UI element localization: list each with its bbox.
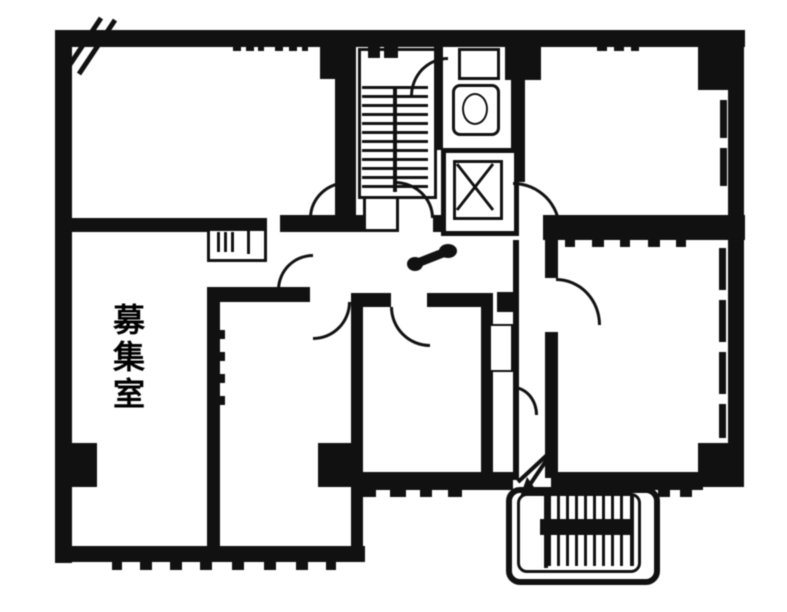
window-tick xyxy=(676,240,686,247)
window-tick xyxy=(420,490,432,497)
window-tick xyxy=(719,300,726,342)
door-swing-arc-icon xyxy=(309,181,348,218)
duct-outline xyxy=(489,324,513,372)
window-tick xyxy=(220,396,225,405)
window-tick xyxy=(289,42,297,51)
window-tick xyxy=(680,490,692,497)
window-tick xyxy=(302,42,308,51)
window-tick xyxy=(233,42,241,51)
floor-plan-drawing: 募集室 xyxy=(0,0,787,612)
window-tick xyxy=(275,42,283,51)
pillar-topright-room-right xyxy=(698,45,740,90)
door-swing-arc-icon xyxy=(556,278,601,325)
window-tick xyxy=(592,240,604,247)
wall-rightroom-left-a xyxy=(545,240,558,278)
landing-mark xyxy=(384,47,398,58)
window-tick xyxy=(246,42,254,51)
landing-mark xyxy=(368,47,380,58)
duct-box xyxy=(497,292,513,312)
corner-column xyxy=(698,443,740,487)
window-tick xyxy=(565,240,575,247)
window-tick xyxy=(658,490,670,497)
elevator-x-icon xyxy=(453,160,503,220)
external-stair-rail xyxy=(544,496,548,568)
room-label: 募集室 xyxy=(104,303,150,414)
window-tick xyxy=(597,40,607,51)
corridor-mark xyxy=(403,240,461,276)
window-tick xyxy=(720,100,727,138)
window-tick xyxy=(326,562,336,570)
window-tick xyxy=(648,240,660,247)
wall-innerroom-left xyxy=(207,287,220,546)
window-tick xyxy=(390,490,406,497)
window-tick xyxy=(220,374,225,383)
window-tick xyxy=(296,562,308,570)
external-stair-rail xyxy=(630,496,634,566)
window-tick xyxy=(112,562,122,570)
closet-line xyxy=(217,232,220,252)
pillar-topright-room-left xyxy=(505,45,541,80)
window-tick xyxy=(362,490,376,497)
window-tick xyxy=(719,352,726,394)
door-swing-arc-icon xyxy=(390,307,430,347)
window-tick xyxy=(631,40,639,51)
window-tick xyxy=(232,562,244,570)
stair-landing-box xyxy=(363,196,399,232)
closet-line xyxy=(231,232,234,252)
door-swing-arc-icon xyxy=(277,254,313,290)
floor-plan: 募集室 xyxy=(0,0,787,612)
door-swing-arc-icon xyxy=(513,182,561,230)
wall-shaft xyxy=(513,240,519,480)
wc-tank xyxy=(458,48,500,80)
pillar-left xyxy=(57,443,97,487)
closet-box xyxy=(207,228,267,262)
toilet-bowl xyxy=(462,93,488,125)
wall-top xyxy=(57,30,745,47)
wall-right xyxy=(728,30,744,487)
wall-bottom-left xyxy=(55,546,365,562)
window-tick xyxy=(220,352,225,361)
window-tick xyxy=(264,562,276,570)
wall-centerroom-right xyxy=(481,293,493,480)
window-tick xyxy=(719,404,726,438)
closet-line xyxy=(224,232,227,252)
window-tick xyxy=(200,562,212,570)
closet-line xyxy=(247,230,250,254)
window-tick xyxy=(614,40,624,51)
elevator-cross xyxy=(456,163,494,211)
external-stair-landing-bar xyxy=(540,519,634,535)
stair-divider xyxy=(393,86,397,192)
pillar-center xyxy=(318,443,351,487)
window-tick xyxy=(620,240,630,247)
wall-centerroom-top-a xyxy=(351,293,391,307)
wall-right-section xyxy=(543,215,745,240)
corner-diagonal-mark-icon xyxy=(45,8,125,86)
window-tick xyxy=(170,562,182,570)
window-tick xyxy=(220,330,225,339)
window-tick xyxy=(258,42,264,51)
window-tick xyxy=(719,248,726,290)
wall-inner-vertical xyxy=(351,300,363,562)
door-swing-arc-icon xyxy=(513,386,538,415)
window-tick xyxy=(448,490,462,497)
pillar-topleft-room xyxy=(320,45,356,79)
window-tick xyxy=(720,148,727,186)
window-tick xyxy=(140,562,152,570)
entrance-arrow-icon xyxy=(505,446,567,504)
door-swing-arc-icon xyxy=(313,302,351,340)
